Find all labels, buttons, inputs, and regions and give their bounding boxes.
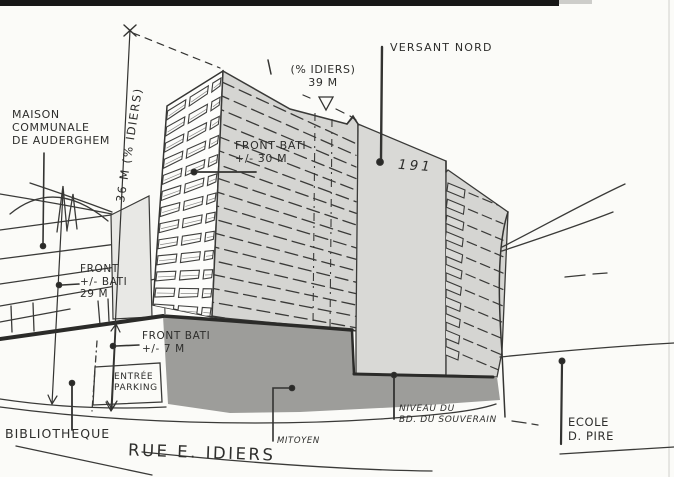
label-maison-communale: MAISON COMMUNALE DE AUDERGHEM bbox=[12, 108, 110, 148]
label-mitoyen: MITOYEN bbox=[277, 436, 320, 446]
label-bibliotheque: BIBLIOTHEQUE bbox=[5, 426, 110, 441]
label-level-39m: (% IDIERS) 39 M bbox=[284, 63, 362, 89]
scan-edge-strip bbox=[0, 0, 559, 6]
label-versant-nord: VERSANT NORD bbox=[390, 41, 493, 54]
label-front-bati-7m: FRONT BATI +/- 7 M bbox=[142, 330, 210, 355]
label-ecole-d-pire: ECOLE D. PIRE bbox=[568, 416, 614, 444]
label-niveau-souverain: NIVEAU DU BD. DU SOUVERAIN bbox=[399, 404, 497, 426]
label-front-bati-30m: FRONT BATI +/- 30 M bbox=[235, 139, 306, 165]
sketch-page: MAISON COMMUNALE DE AUDERGHEM 36 M (% ID… bbox=[0, 0, 674, 477]
label-building-number: 191 bbox=[397, 157, 433, 176]
label-front-bati-29m: FRONT +/- BATI 29 M bbox=[80, 263, 127, 301]
label-entree-parking: ENTRÉE PARKING bbox=[114, 372, 158, 395]
